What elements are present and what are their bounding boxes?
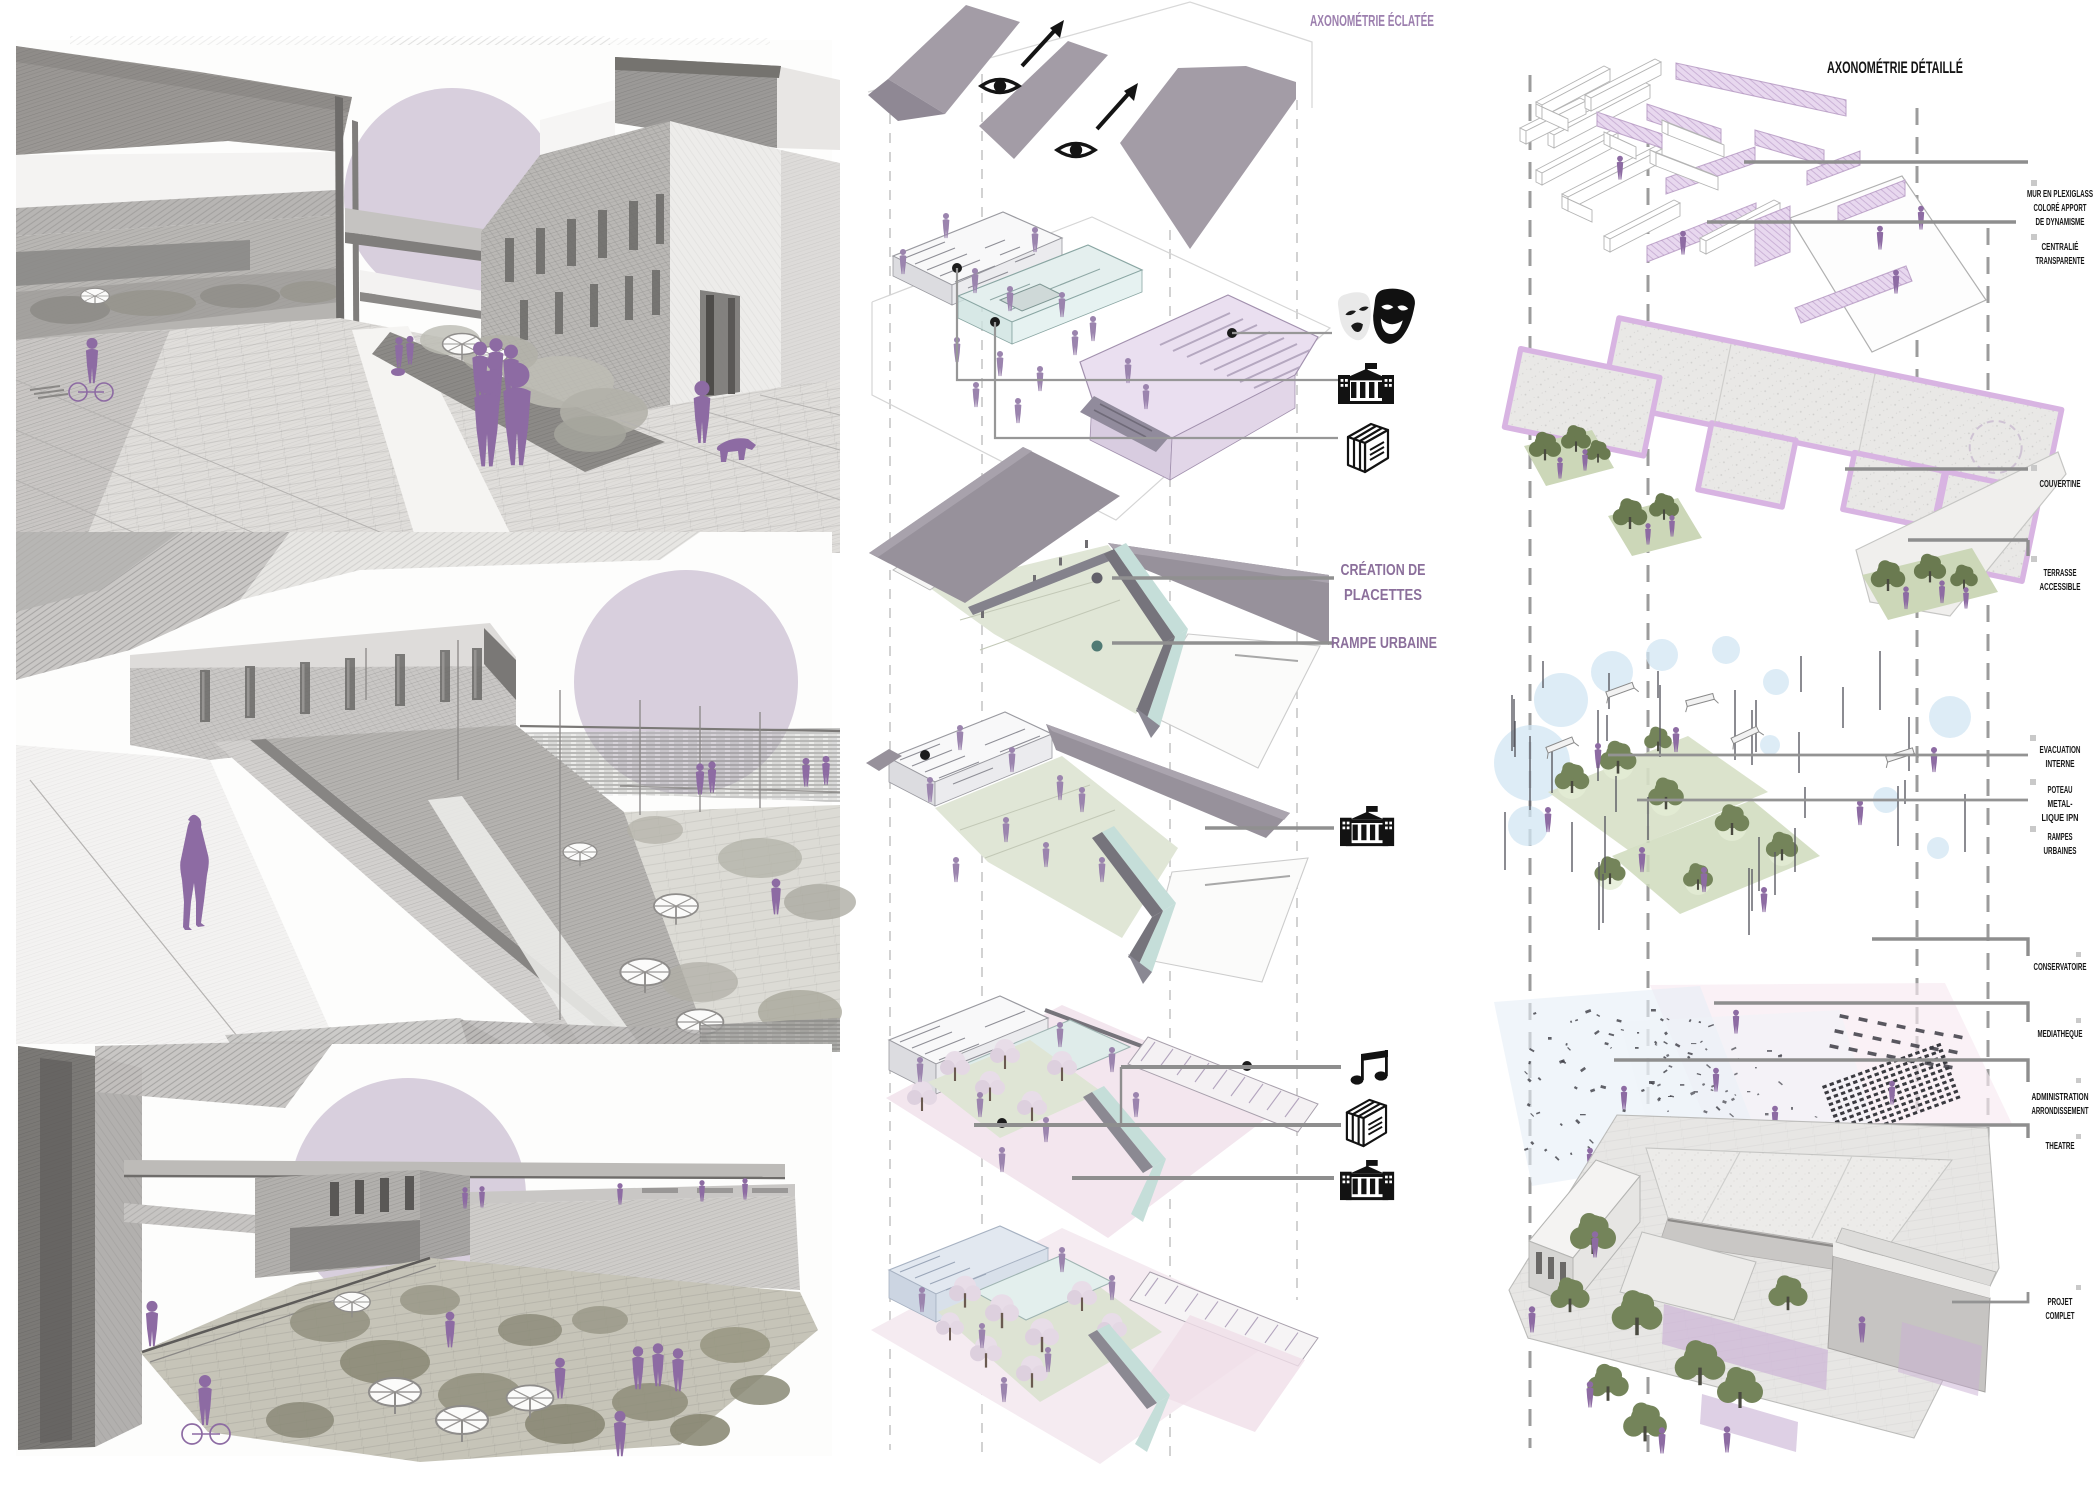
svg-text:CENTRALIÉ: CENTRALIÉ [2042,240,2079,253]
svg-text:PROJET: PROJET [2048,1297,2073,1308]
svg-text:MEDIATHEQUE: MEDIATHEQUE [2038,1029,2083,1040]
svg-text:TRANSPARENTE: TRANSPARENTE [2036,256,2085,267]
svg-text:METAL-: METAL- [2048,799,2073,810]
svg-text:CRÉATION DE: CRÉATION DE [1341,562,1426,579]
svg-text:AXONOMÉTRIE DÉTAILLÉ: AXONOMÉTRIE DÉTAILLÉ [1827,58,1963,77]
svg-text:LIQUE IPN: LIQUE IPN [2042,813,2079,824]
svg-text:INTERNE: INTERNE [2046,759,2075,770]
svg-text:POTEAU: POTEAU [2048,785,2073,796]
svg-text:AXONOMÉTRIE ÉCLATÉE: AXONOMÉTRIE ÉCLATÉE [1310,11,1434,30]
svg-text:DE DYNAMISME: DE DYNAMISME [2036,217,2085,228]
svg-text:ARRONDISSEMENT: ARRONDISSEMENT [2032,1106,2089,1117]
svg-text:COMPLET: COMPLET [2046,1311,2075,1322]
svg-text:TERRASSE: TERRASSE [2044,568,2077,579]
svg-text:CONSERVATOIRE: CONSERVATOIRE [2034,962,2087,973]
svg-text:EVACUATION: EVACUATION [2040,745,2081,756]
svg-text:ADMINISTRATION: ADMINISTRATION [2032,1092,2089,1103]
svg-text:ACCESSIBLE: ACCESSIBLE [2040,582,2081,593]
svg-text:THEATRE: THEATRE [2046,1141,2075,1152]
svg-text:COLORÉ APPORT: COLORÉ APPORT [2034,201,2087,214]
svg-text:RAMPES: RAMPES [2048,832,2073,843]
svg-text:COUVERTINE: COUVERTINE [2040,479,2081,490]
svg-text:MUR EN PLEXIGLASS: MUR EN PLEXIGLASS [2027,189,2093,200]
svg-text:RAMPE URBAINE: RAMPE URBAINE [1331,635,1437,652]
svg-text:URBAINES: URBAINES [2044,846,2077,857]
svg-text:PLACETTES: PLACETTES [1344,587,1422,604]
